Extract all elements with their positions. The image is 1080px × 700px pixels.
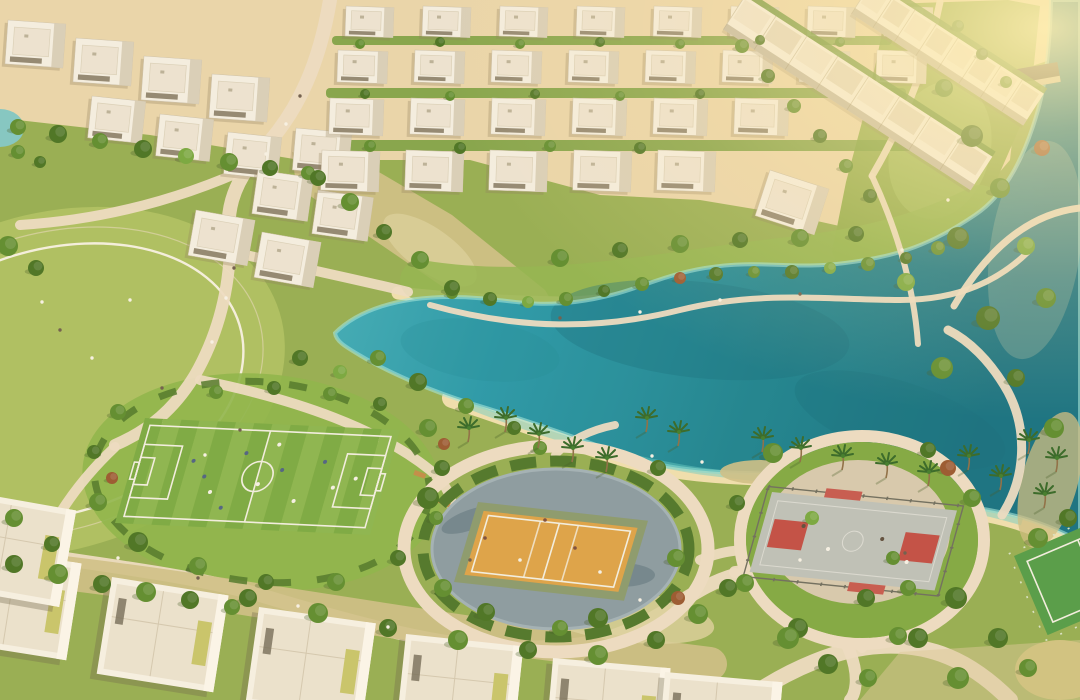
lighting-overlay xyxy=(0,0,1080,700)
masterplan-svg: Aerial rendering of a master-planned vil… xyxy=(0,0,1080,700)
sun-glare-overlay xyxy=(0,0,1080,700)
aerial-render-scene: Aerial rendering of a master-planned vil… xyxy=(0,0,1080,700)
